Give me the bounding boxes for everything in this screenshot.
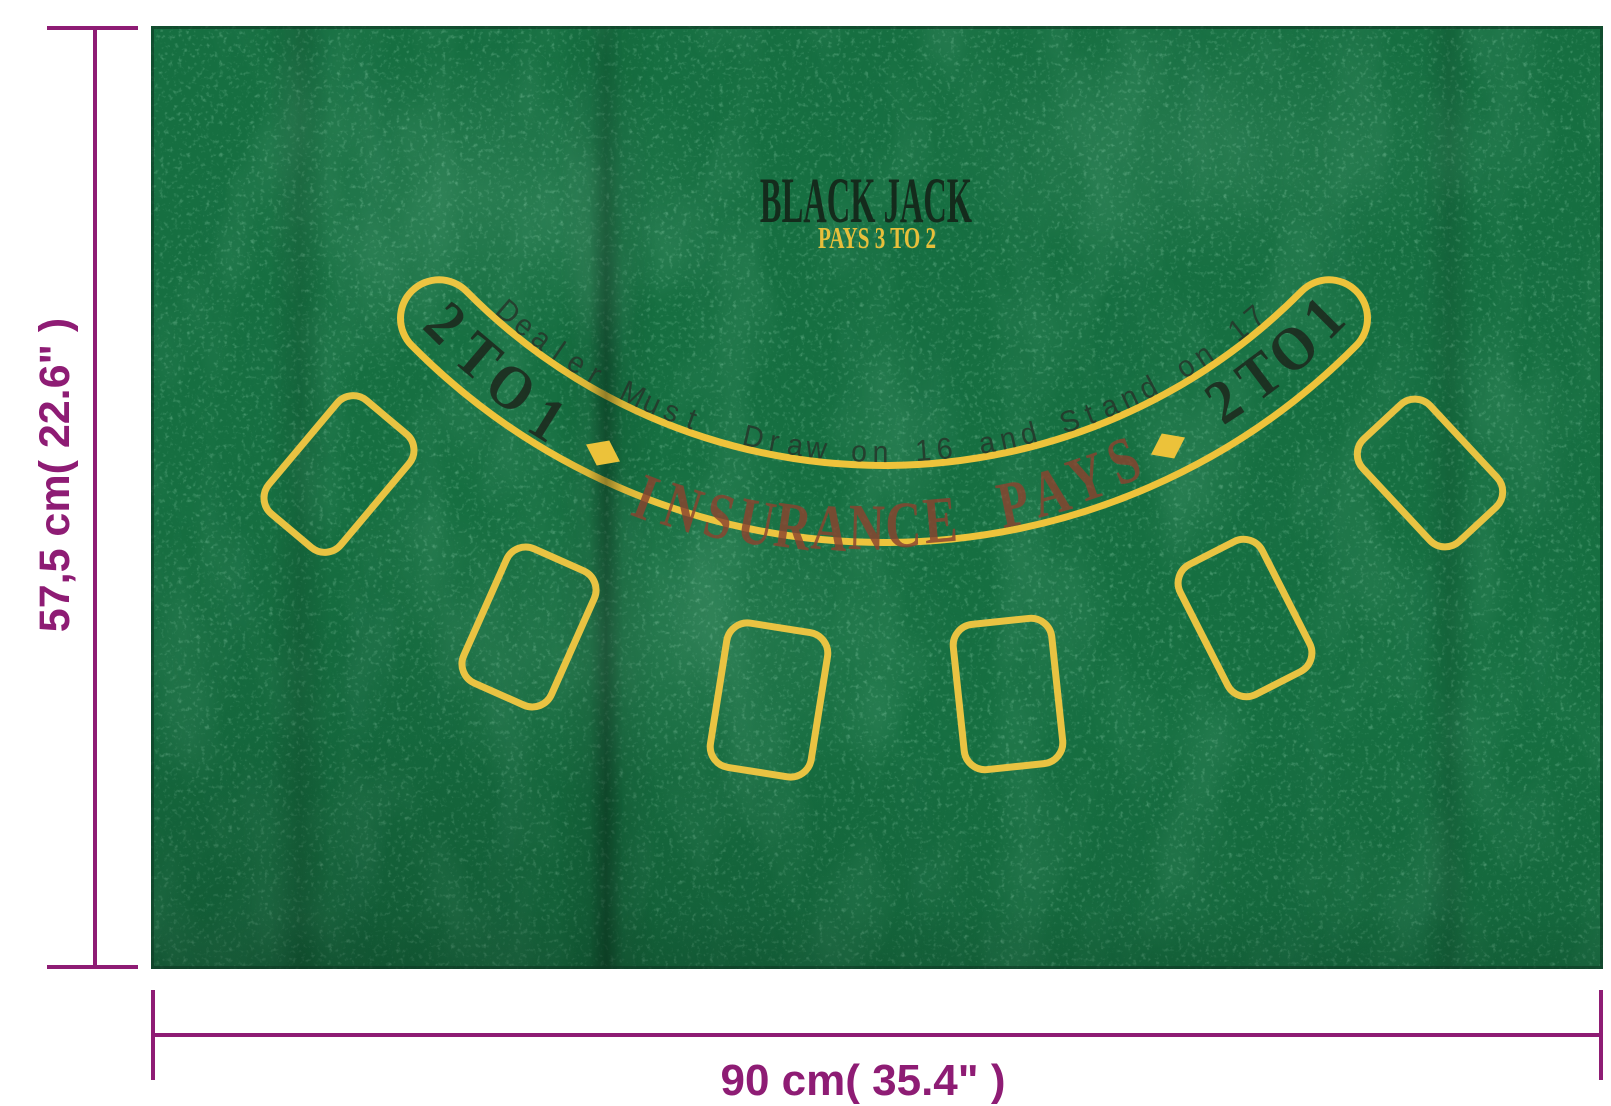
svg-text:o: o [850,436,867,469]
svg-text:n: n [872,436,888,469]
svg-text:PAYS 3 TO 2: PAYS 3 TO 2 [818,220,936,255]
svg-text:1: 1 [914,434,932,468]
svg-text:A: A [809,490,851,566]
svg-text:N: N [848,490,886,564]
svg-text:C: C [884,488,922,562]
svg-text:E: E [920,482,960,558]
